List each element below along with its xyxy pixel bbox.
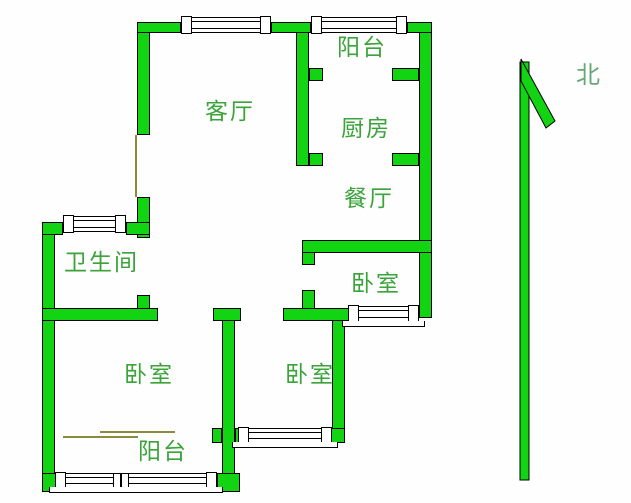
window-glazing bbox=[249, 432, 321, 439]
window bbox=[238, 428, 332, 443]
door-line bbox=[100, 431, 175, 433]
window-cap bbox=[115, 215, 126, 233]
wall-segment bbox=[302, 240, 432, 253]
window-cap bbox=[396, 16, 407, 34]
window-mullion bbox=[113, 473, 121, 488]
window-glazing bbox=[66, 477, 206, 484]
wall-segment bbox=[392, 153, 419, 166]
window bbox=[63, 216, 126, 232]
wall-segment bbox=[213, 308, 241, 321]
wall-segment bbox=[222, 308, 235, 487]
window-sill bbox=[342, 321, 425, 327]
wall-segment bbox=[419, 22, 432, 318]
window-cap bbox=[260, 16, 271, 34]
floorplan-canvas: 北 客厅阳台厨房餐厅卫生间卧室卧室卧室阳台 bbox=[0, 0, 631, 503]
room-label-dining-room: 餐厅 bbox=[344, 187, 394, 212]
wall-segment bbox=[126, 222, 150, 235]
window-glazing bbox=[322, 21, 396, 29]
wall-segment bbox=[137, 22, 150, 135]
window-sill bbox=[232, 442, 338, 448]
wall-segment bbox=[309, 153, 323, 166]
window-glazing bbox=[359, 310, 408, 318]
wall-segment bbox=[42, 308, 158, 321]
room-label-balcony-south: 阳台 bbox=[138, 440, 188, 465]
window bbox=[311, 17, 407, 33]
window-cap bbox=[181, 16, 192, 34]
wall-segment bbox=[42, 222, 55, 492]
window-glazing bbox=[192, 21, 260, 29]
window bbox=[55, 473, 217, 488]
room-label-bedroom-west: 卧室 bbox=[124, 363, 174, 388]
wall-segment bbox=[283, 308, 353, 321]
window-sill bbox=[49, 487, 223, 493]
wall-segment bbox=[309, 68, 323, 81]
window-mullion bbox=[121, 473, 129, 488]
room-label-bathroom: 卫生间 bbox=[64, 251, 139, 276]
wall-segment bbox=[42, 222, 63, 235]
door-line bbox=[135, 135, 137, 197]
window bbox=[181, 17, 271, 33]
wall-segment bbox=[271, 22, 311, 33]
window-cap bbox=[311, 16, 322, 34]
room-label-bedroom-east: 卧室 bbox=[351, 272, 401, 297]
wall-segment bbox=[137, 22, 181, 33]
room-label-bedroom-south: 卧室 bbox=[285, 363, 335, 388]
wall-segment bbox=[296, 22, 309, 166]
wall-segment bbox=[407, 22, 432, 33]
room-label-balcony-north: 阳台 bbox=[337, 36, 387, 61]
north-label: 北 bbox=[576, 55, 600, 90]
window bbox=[348, 306, 419, 322]
door-line bbox=[63, 436, 138, 438]
wall-segment bbox=[212, 428, 222, 443]
wall-segment bbox=[392, 68, 419, 81]
window-cap bbox=[63, 215, 74, 233]
window-glazing bbox=[74, 220, 115, 228]
room-label-kitchen: 厨房 bbox=[341, 117, 391, 142]
room-label-living-room: 客厅 bbox=[205, 100, 255, 125]
